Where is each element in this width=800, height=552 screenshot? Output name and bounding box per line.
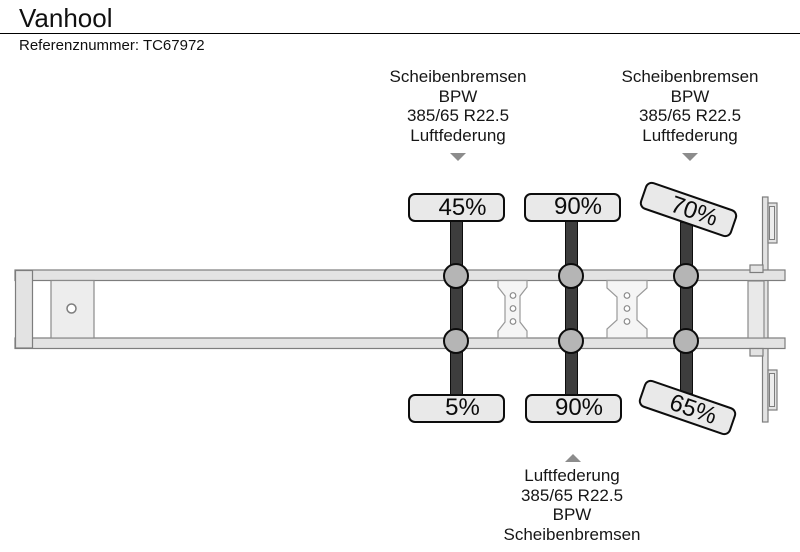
spec-block-top-right: Scheibenbremsen BPW 385/65 R22.5 Luftfed… xyxy=(580,67,800,145)
spec-line: BPW xyxy=(462,505,682,525)
spec-line: Luftfederung xyxy=(348,126,568,146)
spec-block-top-left: Scheibenbremsen BPW 385/65 R22.5 Luftfed… xyxy=(348,67,568,145)
spec-line: Luftfederung xyxy=(462,466,682,486)
pointer-down-icon xyxy=(450,153,466,161)
tire-tread-axle1-bottom: 5% xyxy=(408,394,505,423)
axle-2-bar xyxy=(565,220,578,396)
spec-line: 385/65 R22.5 xyxy=(580,106,800,126)
lightening-hole xyxy=(510,319,516,325)
axle-2-hub-top xyxy=(558,263,584,289)
chassis-rail-bottom xyxy=(15,338,785,349)
pointer-up-icon xyxy=(565,454,581,462)
rear-bumper-foot-top xyxy=(750,265,763,273)
spec-line: 385/65 R22.5 xyxy=(462,486,682,506)
axle-3-bar xyxy=(680,222,693,394)
front-crossmember xyxy=(16,271,33,349)
lightening-hole xyxy=(510,293,516,299)
axle-2-hub-bottom xyxy=(558,328,584,354)
rear-bumper-foot-bottom xyxy=(750,349,763,357)
chassis-rail-top xyxy=(15,270,785,281)
spec-line: 385/65 R22.5 xyxy=(348,106,568,126)
axle-3-hub-top xyxy=(673,263,699,289)
trailer-axle-diagram: Vanhool Referenznummer: TC67972 xyxy=(0,0,800,552)
lightening-hole xyxy=(624,319,630,325)
lightening-hole xyxy=(624,306,630,312)
axle-1-bar xyxy=(450,220,463,396)
spec-line: BPW xyxy=(580,87,800,107)
tire-tread-axle2-bottom: 90% xyxy=(525,394,622,423)
kingpin-circle xyxy=(67,304,76,313)
spec-line: Scheibenbremsen xyxy=(580,67,800,87)
rear-end-block xyxy=(748,281,764,338)
tire-tread-axle2-top: 90% xyxy=(524,193,621,222)
lightening-hole xyxy=(624,293,630,299)
spec-line: BPW xyxy=(348,87,568,107)
rear-pad-bottom-inner xyxy=(770,374,775,407)
tire-tread-axle1-top: 45% xyxy=(408,193,505,222)
spec-block-bottom: Luftfederung 385/65 R22.5 BPW Scheibenbr… xyxy=(462,466,682,544)
lightening-hole xyxy=(510,306,516,312)
spec-line: Scheibenbremsen xyxy=(348,67,568,87)
spec-line: Luftfederung xyxy=(580,126,800,146)
axle-1-hub-bottom xyxy=(443,328,469,354)
axle-3-hub-bottom xyxy=(673,328,699,354)
axle-1-hub-top xyxy=(443,263,469,289)
spec-line: Scheibenbremsen xyxy=(462,525,682,545)
rear-pad-top-inner xyxy=(770,207,775,240)
pointer-down-icon xyxy=(682,153,698,161)
